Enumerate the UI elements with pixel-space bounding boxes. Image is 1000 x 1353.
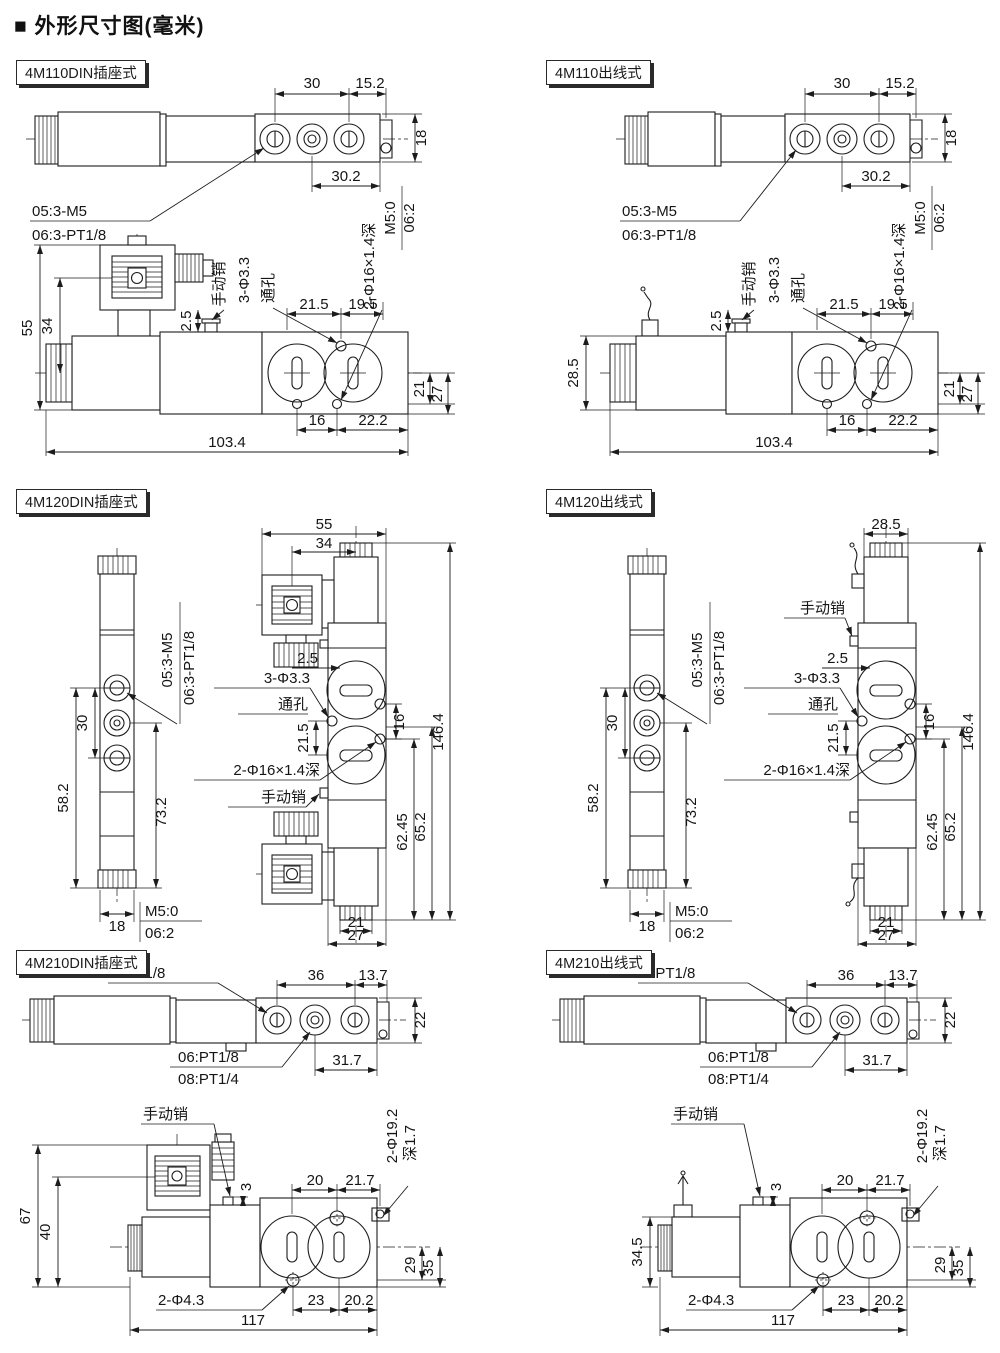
dim-15-2: 15.2 — [355, 75, 384, 92]
label-manual-pin: 手动销 — [741, 261, 758, 306]
dim-28-5: 28.5 — [565, 358, 582, 387]
valve-side-view: 28.5 2.5 手动销 3-Φ3.3 通孔 2-Φ16×1.4深 21.5 1… — [565, 223, 985, 456]
dim-30-2: 30.2 — [331, 168, 360, 185]
port-label-1: 05:3-M5 — [622, 203, 677, 220]
port-note-m5: M5:0 — [145, 903, 178, 920]
dim-35: 35 — [420, 1260, 437, 1277]
label-manual-pin: 手动销 — [211, 261, 228, 306]
panel-4m120-din: 4M120DIN插座式 30 58.2 73.2 — [10, 487, 470, 948]
dim-2-5: 2.5 — [178, 311, 195, 332]
dim-21: 21 — [411, 381, 428, 398]
dim-36: 36 — [308, 967, 325, 984]
port-label-2: 06:3-PT1/8 — [32, 227, 106, 244]
dim-146-4: 146.4 — [960, 713, 977, 751]
panel-header: 4M110DIN插座式 — [16, 60, 146, 85]
dim-65-2: 65.2 — [412, 812, 429, 841]
label-manual-pin: 手动销 — [261, 789, 306, 806]
port-label-1: 06:PT1/8 — [178, 1049, 239, 1066]
port-label-1: 05:3-M5 — [689, 632, 706, 687]
panel-4m110-lead: 4M110出线式 30 15.2 18 — [540, 58, 1000, 462]
dim-67: 67 — [17, 1208, 34, 1225]
panel-header: 4M210出线式 — [546, 950, 652, 975]
dim-20-2: 20.2 — [344, 1292, 373, 1309]
dim-27: 27 — [348, 927, 365, 944]
label-holes: 3-Φ3.3 — [766, 257, 783, 303]
label-counterbore: 2-Φ16×1.4深 — [763, 762, 850, 779]
port-label-2: 08:PT1/4 — [708, 1071, 769, 1088]
dim-58-2: 58.2 — [55, 783, 72, 812]
port-label-1: 06:PT1/8 — [708, 1049, 769, 1066]
valve-end-view: 30 58.2 73.2 18 M5:0 06:2 05:3-M5 06:3-P… — [585, 548, 732, 942]
dim-27: 27 — [878, 927, 895, 944]
dim-28-5: 28.5 — [871, 516, 900, 533]
label-holes: 2-Φ4.3 — [688, 1292, 734, 1309]
dim-16: 16 — [309, 412, 326, 429]
drawing-4m120-din: 30 58.2 73.2 18 M5:0 06:2 05:3-M5 06:3-P… — [10, 512, 470, 948]
valve-top-view: 36 13.7 22 31.7 2-PT1/8 06:PT1/8 08:PT1/… — [22, 965, 429, 1088]
dim-58-2: 58.2 — [585, 783, 602, 812]
dim-34-5: 34.5 — [629, 1237, 646, 1266]
label-through: 通孔 — [808, 696, 838, 713]
dim-19-5: 19.5 — [878, 296, 907, 313]
dim-35: 35 — [950, 1260, 967, 1277]
dim-21-5: 21.5 — [829, 296, 858, 313]
port-label-1: 05:3-M5 — [32, 203, 87, 220]
dim-73-2: 73.2 — [153, 797, 170, 826]
dim-29: 29 — [402, 1257, 419, 1274]
dim-103-4: 103.4 — [208, 434, 246, 451]
panel-header: 4M120出线式 — [546, 489, 652, 514]
dim-18: 18 — [109, 918, 126, 935]
valve-side-view: 手动销 67 40 3 20 21.7 2-Φ19.2 深1.7 — [17, 1106, 446, 1336]
drawing-4m120-lead: 30 58.2 73.2 18 M5:0 06:2 05:3-M5 06:3-P… — [540, 512, 1000, 948]
label-holes: 3-Φ3.3 — [794, 670, 840, 687]
valve-end-view: 30 58.2 73.2 18 M5:0 06:2 05:3-M5 06:3-P… — [55, 548, 202, 942]
panel-4m110-din: 4M110DIN插座式 30 15.2 — [10, 58, 470, 462]
dim-2-5: 2.5 — [827, 650, 848, 667]
port-label-2: 06:3-PT1/8 — [711, 631, 728, 705]
dim-22: 22 — [412, 1012, 429, 1029]
dim-27: 27 — [959, 386, 976, 403]
dim-20: 20 — [837, 1172, 854, 1189]
port-note-06: 06:2 — [145, 925, 174, 942]
drawing-4m210-din: 36 13.7 22 31.7 2-PT1/8 06:PT1/8 08:PT1/… — [10, 958, 470, 1348]
dim-2-5: 2.5 — [297, 650, 318, 667]
label-manual-pin: 手动销 — [143, 1106, 188, 1123]
dim-16: 16 — [921, 714, 938, 731]
dim-30: 30 — [304, 75, 321, 92]
dim-21-7: 21.7 — [345, 1172, 374, 1189]
label-counterbore: 2-Φ16×1.4深 — [233, 762, 320, 779]
dim-30: 30 — [834, 75, 851, 92]
label-holes: 3-Φ3.3 — [236, 257, 253, 303]
dim-31-7: 31.7 — [332, 1052, 361, 1069]
dim-146-4: 146.4 — [430, 713, 447, 751]
port-label-1: 05:3-M5 — [159, 632, 176, 687]
valve-front-view: 55 34 2.5 3-Φ3.3 通孔 21.5 16 2-Φ16×1.4深 — [194, 516, 456, 946]
dim-36: 36 — [838, 967, 855, 984]
dim-22: 22 — [942, 1012, 959, 1029]
dim-103-4: 103.4 — [755, 434, 793, 451]
dim-27: 27 — [429, 386, 446, 403]
dim-30: 30 — [74, 715, 91, 732]
valve-top-view: 30 15.2 18 30.2 M5:0 06:2 05:3-M5 06:3-P… — [616, 75, 960, 250]
dim-21-5: 21.5 — [825, 723, 842, 752]
label-counterbore: 2-Φ19.2 — [384, 1109, 401, 1164]
dim-62-45: 62.45 — [924, 813, 941, 851]
panel-4m210-din: 4M210DIN插座式 36 13.7 — [10, 948, 470, 1348]
dim-20: 20 — [307, 1172, 324, 1189]
dim-62-45: 62.45 — [394, 813, 411, 851]
page: ■ 外形尺寸图(毫米) 4M110DIN插座式 30 15.2 — [0, 0, 1000, 1353]
page-title: ■ 外形尺寸图(毫米) — [14, 10, 205, 40]
dim-55: 55 — [316, 516, 333, 533]
dim-13-7: 13.7 — [888, 967, 917, 984]
label-through: 通孔 — [278, 696, 308, 713]
dim-3: 3 — [768, 1183, 785, 1191]
panel-header: 4M210DIN插座式 — [16, 950, 147, 975]
dim-21-5: 21.5 — [299, 296, 328, 313]
drawing-4m210-lead: 36 13.7 22 31.7 2-PT1/8 06:PT1/8 08:PT1/… — [540, 958, 1000, 1348]
dim-18: 18 — [413, 130, 430, 147]
dim-21-7: 21.7 — [875, 1172, 904, 1189]
port-label-2: 06:3-PT1/8 — [622, 227, 696, 244]
panel-4m210-lead: 4M210出线式 36 13.7 — [540, 948, 1000, 1348]
dim-21-5: 21.5 — [295, 723, 312, 752]
port-note-m5: M5:0 — [382, 201, 399, 234]
dim-16: 16 — [839, 412, 856, 429]
dim-20-2: 20.2 — [874, 1292, 903, 1309]
port-label-2: 08:PT1/4 — [178, 1071, 239, 1088]
label-depth: 深1.7 — [932, 1125, 949, 1161]
label-manual-pin: 手动销 — [673, 1106, 718, 1123]
drawing-4m110-lead: 30 15.2 18 30.2 M5:0 06:2 05:3-M5 06:3-P… — [540, 58, 1000, 462]
valve-top-view: 36 13.7 22 31.7 2-PT1/8 06:PT1/8 08:PT1/… — [552, 965, 959, 1088]
panel-4m120-lead: 4M120出线式 30 58.2 73.2 — [540, 487, 1000, 948]
valve-front-view: 28.5 手动销 2.5 3-Φ3.3 通孔 21.5 16 2-Φ16×1.4… — [724, 516, 986, 946]
port-label-2: 06:3-PT1/8 — [181, 631, 198, 705]
dim-65-2: 65.2 — [942, 812, 959, 841]
dim-22-2: 22.2 — [888, 412, 917, 429]
dim-40: 40 — [37, 1224, 54, 1241]
port-note-m5: M5:0 — [675, 903, 708, 920]
label-through: 通孔 — [790, 273, 807, 303]
panel-header: 4M120DIN插座式 — [16, 489, 147, 514]
dim-29: 29 — [932, 1257, 949, 1274]
port-note-06: 06:2 — [401, 203, 418, 232]
label-manual-pin: 手动销 — [800, 600, 845, 617]
port-note-06: 06:2 — [675, 925, 704, 942]
panel-header: 4M110出线式 — [546, 60, 651, 85]
port-note-06: 06:2 — [931, 203, 948, 232]
dim-55: 55 — [19, 320, 36, 337]
dim-16: 16 — [391, 714, 408, 731]
dim-15-2: 15.2 — [885, 75, 914, 92]
label-depth: 深1.7 — [402, 1125, 419, 1161]
label-holes: 2-Φ4.3 — [158, 1292, 204, 1309]
dim-73-2: 73.2 — [683, 797, 700, 826]
label-through: 通孔 — [260, 273, 277, 303]
dim-3: 3 — [238, 1183, 255, 1191]
dim-30: 30 — [604, 715, 621, 732]
dim-34: 34 — [316, 535, 333, 552]
dim-30-2: 30.2 — [861, 168, 890, 185]
dim-34: 34 — [39, 318, 56, 335]
valve-side-view: 手动销 34.5 3 20 21.7 2-Φ19.2 深1.7 29 — [629, 1106, 976, 1336]
dim-117: 117 — [241, 1312, 265, 1329]
valve-side-view: 55 34 2.5 手动销 3-Φ3.3 通孔 2-Φ16×1.4深 21.5 … — [19, 223, 455, 456]
dim-21: 21 — [941, 381, 958, 398]
dim-2-5: 2.5 — [708, 311, 725, 332]
drawing-4m110-din: 30 15.2 18 30.2 M5:0 06:2 05:3-M5 06:3-P… — [10, 58, 470, 462]
port-note-m5: M5:0 — [912, 201, 929, 234]
dim-117: 117 — [771, 1312, 795, 1329]
dim-19-5: 19.5 — [348, 296, 377, 313]
label-holes: 3-Φ3.3 — [264, 670, 310, 687]
dim-22-2: 22.2 — [358, 412, 387, 429]
dim-23: 23 — [308, 1292, 325, 1309]
dim-23: 23 — [838, 1292, 855, 1309]
dim-13-7: 13.7 — [358, 967, 387, 984]
dim-31-7: 31.7 — [862, 1052, 891, 1069]
label-counterbore: 2-Φ19.2 — [914, 1109, 931, 1164]
dim-18: 18 — [943, 130, 960, 147]
dim-18: 18 — [639, 918, 656, 935]
